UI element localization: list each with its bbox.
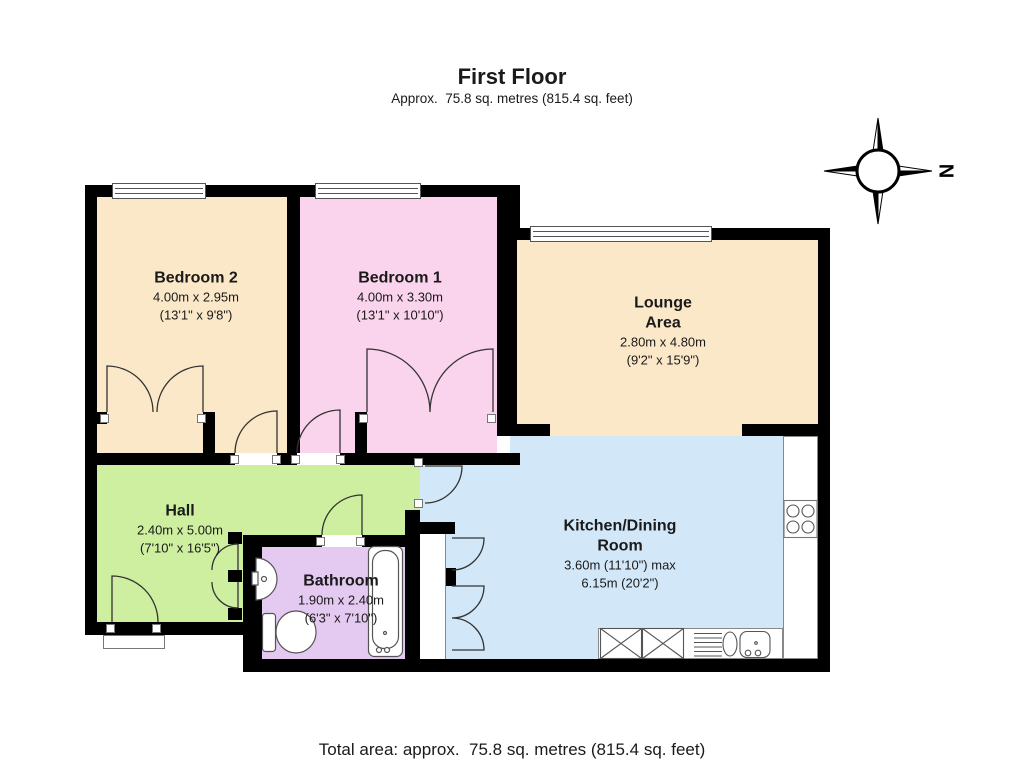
- floor-plan: First Floor Approx. 75.8 sq. metres (815…: [0, 0, 1024, 768]
- sink-tap: [755, 650, 761, 656]
- bathtub-drain: [384, 632, 387, 635]
- room-dimensions-metric: 3.60m (11'10") max: [564, 556, 677, 574]
- room-label-bedroom-1: Bedroom 1 4.00m x 3.30m (13'1" x 10'10"): [356, 268, 443, 323]
- hob-burner: [802, 521, 814, 533]
- room-name: Kitchen/Dining Room: [564, 516, 677, 556]
- room-name: Lounge Area: [620, 293, 706, 333]
- hall-cupboard-door: [212, 582, 238, 608]
- plan-fixtures-layer: N: [0, 0, 1024, 768]
- room-dimensions-imperial: (7'10" x 16'5"): [137, 539, 223, 557]
- toilet-cistern: [263, 614, 276, 652]
- sink-basin: [723, 632, 737, 656]
- compass-icon: N: [824, 118, 957, 224]
- room-label-hall: Hall 2.40m x 5.00m (7'10" x 16'5"): [137, 501, 223, 556]
- room-dimensions-metric: 2.40m x 5.00m: [137, 521, 223, 539]
- sink-drainer: [694, 634, 722, 657]
- bathtub-tap: [377, 648, 382, 653]
- hob-burner: [802, 505, 814, 517]
- room-name: Bathroom: [298, 571, 384, 591]
- room-dimensions-metric: 4.00m x 3.30m: [356, 288, 443, 306]
- room-dimensions-imperial: (9'2" x 15'9"): [620, 351, 706, 369]
- room-dimensions-metric: 4.00m x 2.95m: [153, 288, 239, 306]
- kitchen-appliance-x: [643, 629, 684, 659]
- bedroom-1-wardrobe-doors: [367, 349, 493, 412]
- room-dimensions-imperial: (13'1" x 10'10"): [356, 306, 443, 324]
- room-dimensions-imperial: 6.15m (20'2"): [564, 574, 677, 592]
- room-dimensions-metric: 1.90m x 2.40m: [298, 591, 384, 609]
- room-dimensions-metric: 2.80m x 4.80m: [620, 333, 706, 351]
- kitchen-cupboard-double-doors: [452, 586, 484, 650]
- room-label-kitchen: Kitchen/Dining Room 3.60m (11'10") max 6…: [564, 516, 677, 591]
- hall-kitchen-door: [425, 466, 462, 503]
- room-dimensions-imperial: (13'1" x 9'8"): [153, 306, 239, 324]
- kitchen-cupboard-door: [452, 538, 484, 570]
- bathtub-tap: [385, 648, 390, 653]
- entrance-door: [112, 576, 158, 622]
- bedroom-2-wardrobe-doors: [107, 366, 203, 412]
- washbasin-tap: [252, 572, 258, 585]
- sink-tap: [745, 650, 751, 656]
- bathroom-door: [322, 495, 362, 535]
- compass-north-label: N: [935, 164, 957, 178]
- room-label-bedroom-2: Bedroom 2 4.00m x 2.95m (13'1" x 9'8"): [153, 268, 239, 323]
- bedroom-1-door: [297, 410, 340, 453]
- room-name: Bedroom 2: [153, 268, 239, 288]
- room-dimensions-imperial: (6'3" x 7'10"): [298, 609, 384, 627]
- washbasin-drain: [262, 577, 267, 582]
- hob-burner: [787, 505, 799, 517]
- kitchen-appliance-x: [601, 629, 642, 659]
- room-label-bathroom: Bathroom 1.90m x 2.40m (6'3" x 7'10"): [298, 571, 384, 626]
- sink-drain: [755, 642, 758, 645]
- bedroom-2-door: [235, 411, 277, 453]
- room-name: Bedroom 1: [356, 268, 443, 288]
- hob-burner: [787, 521, 799, 533]
- room-name: Hall: [137, 501, 223, 521]
- room-label-lounge: Lounge Area 2.80m x 4.80m (9'2" x 15'9"): [620, 293, 706, 368]
